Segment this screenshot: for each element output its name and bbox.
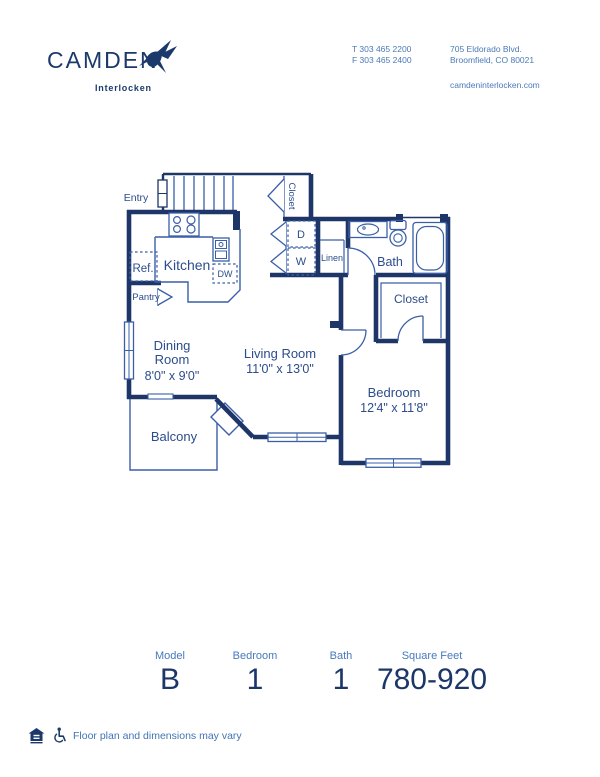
window-bedroom <box>366 459 421 468</box>
hall-closet-door <box>268 176 284 217</box>
stove-icon <box>169 213 199 236</box>
label-living-dims: 11'0" x 13'0" <box>246 362 314 376</box>
floorplan-page: { "header": { "logo_name": "CAMDEN", "lo… <box>0 0 600 777</box>
label-dryer: D <box>297 229 305 241</box>
pantry-door <box>158 288 172 306</box>
label-bedroom-dims: 12'4" x 11'8" <box>360 401 428 415</box>
label-bath: Bath <box>377 255 403 269</box>
stat-bedroom-label: Bedroom <box>205 650 305 663</box>
oven-icon <box>213 238 229 261</box>
label-washer: W <box>296 256 307 268</box>
footer: Floor plan and dimensions may vary <box>28 727 242 744</box>
label-entry: Entry <box>124 192 149 204</box>
label-ref: Ref. <box>132 263 153 275</box>
toilet-icon <box>390 221 406 247</box>
label-bedroom: Bedroom <box>368 385 421 400</box>
entry-stairs <box>174 176 233 211</box>
bedroom-closet-door-arc <box>398 316 423 341</box>
label-closet-bedroom: Closet <box>394 292 429 306</box>
stat-bedroom-value: 1 <box>205 664 305 696</box>
label-living: Living Room <box>244 346 316 361</box>
balcony-sliding-door <box>148 394 173 399</box>
label-balcony: Balcony <box>151 429 198 444</box>
label-kitchen: Kitchen <box>164 257 211 273</box>
accessibility-icon <box>51 727 67 744</box>
laundry-bifold-doors <box>271 221 286 274</box>
disclaimer-text: Floor plan and dimensions may vary <box>73 730 242 742</box>
bath-top-recess <box>403 215 440 222</box>
stat-sqft-value: 780-920 <box>367 664 497 696</box>
bathtub-icon <box>413 223 447 274</box>
label-dining-2: Room <box>155 352 190 367</box>
bath-sink <box>349 222 387 238</box>
stat-sqft: Square Feet 780-920 <box>367 650 497 696</box>
window-living <box>268 433 326 442</box>
unit-stats: Model B Bedroom 1 Bath 1 Square Feet 780… <box>0 650 600 700</box>
stat-sqft-label: Square Feet <box>367 650 497 663</box>
window-dining <box>125 322 134 379</box>
label-dw: DW <box>218 269 233 279</box>
label-closet-top: Closet <box>286 183 297 210</box>
entry-door <box>158 180 167 207</box>
label-pantry: Pantry <box>132 292 160 303</box>
label-linen: Linen <box>321 253 343 263</box>
stat-bedroom: Bedroom 1 <box>205 650 305 696</box>
label-dining-1: Dining <box>154 338 191 353</box>
bedroom-door-arc <box>341 330 366 355</box>
equal-housing-icon <box>28 728 45 744</box>
bath-door-arc <box>348 248 375 275</box>
label-dining-dims: 8'0" x 9'0" <box>145 369 200 383</box>
